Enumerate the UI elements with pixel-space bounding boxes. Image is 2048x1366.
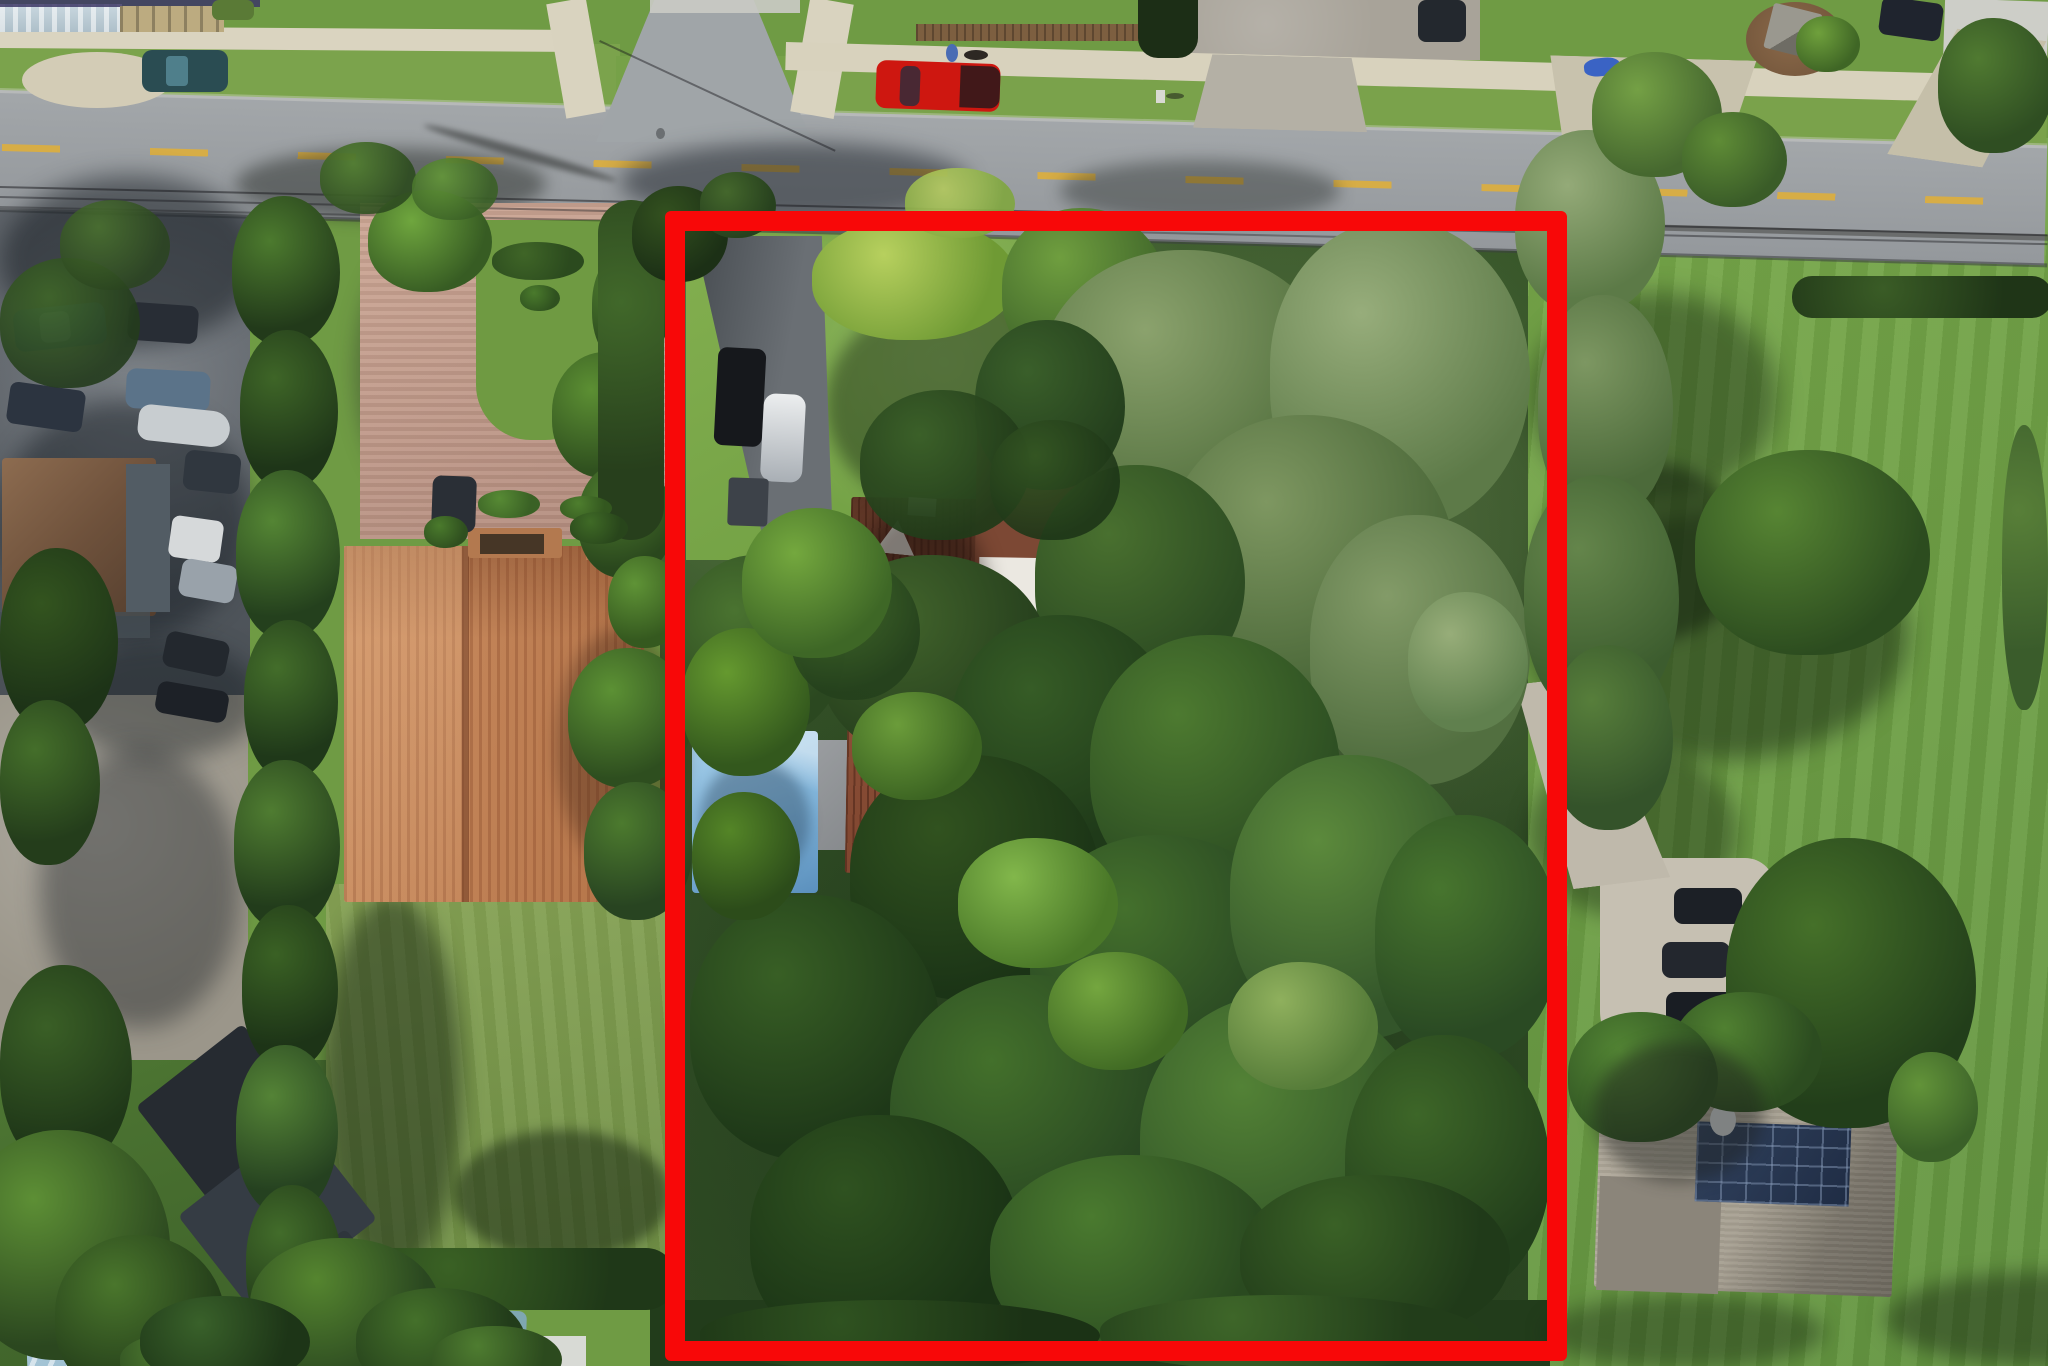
red-pickup-bed	[959, 65, 1000, 108]
red-pickup-glass	[899, 66, 920, 107]
driveway-apron-top-right	[1193, 54, 1369, 133]
orange-house-left-wing-light	[344, 546, 468, 902]
right-parking-car-1	[1674, 888, 1742, 924]
utility-pole	[656, 128, 665, 139]
green-dumpster	[212, 0, 254, 20]
wood-fence-top	[916, 24, 1152, 41]
palm-hedge	[236, 470, 340, 640]
crosswalk	[650, 0, 800, 13]
island-bush	[520, 285, 560, 311]
orange-house-ridge	[462, 546, 469, 902]
right-lawn-tree-cluster	[1695, 450, 1930, 655]
left-house-annex	[126, 464, 170, 612]
top-right-corner-tree	[1938, 18, 2048, 153]
aerial-photo: Aerial drone photo of a residential lot …	[0, 0, 2048, 1366]
property-boundary-outline	[665, 211, 1567, 1361]
entry-hedge	[478, 490, 540, 518]
right-edge-tree-line	[2002, 425, 2048, 710]
right-roof-tree-shadow	[1594, 1042, 1764, 1182]
pedestrian	[946, 44, 958, 62]
metal-roof-top-left	[0, 4, 122, 32]
shrub	[570, 512, 628, 544]
palm-hedge	[240, 330, 338, 490]
parking-overhang-tree	[60, 200, 170, 290]
mailbox	[1156, 90, 1165, 103]
left-edge-tree	[0, 700, 100, 865]
road-overhang-palm	[412, 158, 498, 220]
dog	[964, 50, 988, 60]
mound-palm	[1796, 16, 1860, 72]
tree-right-of-right-house	[1888, 1052, 1978, 1162]
suv-on-gravel	[1418, 0, 1466, 42]
lot-suv-2	[182, 449, 242, 495]
palm-hedge	[244, 620, 338, 780]
teal-car-glass	[166, 56, 188, 86]
right-lawn-shadow	[1545, 1295, 1825, 1366]
wood-steps-top-left	[120, 6, 224, 32]
island-bush	[492, 242, 584, 280]
right-lawn-hedgerow	[1792, 276, 2048, 318]
shrub	[424, 516, 468, 548]
mailbox-shadow	[1166, 93, 1184, 99]
lot-white-truck	[167, 515, 224, 564]
orange-house-entry-shade	[480, 534, 544, 554]
right-parking-car-2	[1662, 942, 1730, 978]
palm-hedge	[232, 196, 340, 346]
backyard-palm-shadow	[455, 1130, 670, 1260]
right-verge-tree	[1682, 112, 1787, 207]
dark-hedge-top	[1138, 0, 1198, 58]
road-overhang-palm	[320, 142, 416, 214]
